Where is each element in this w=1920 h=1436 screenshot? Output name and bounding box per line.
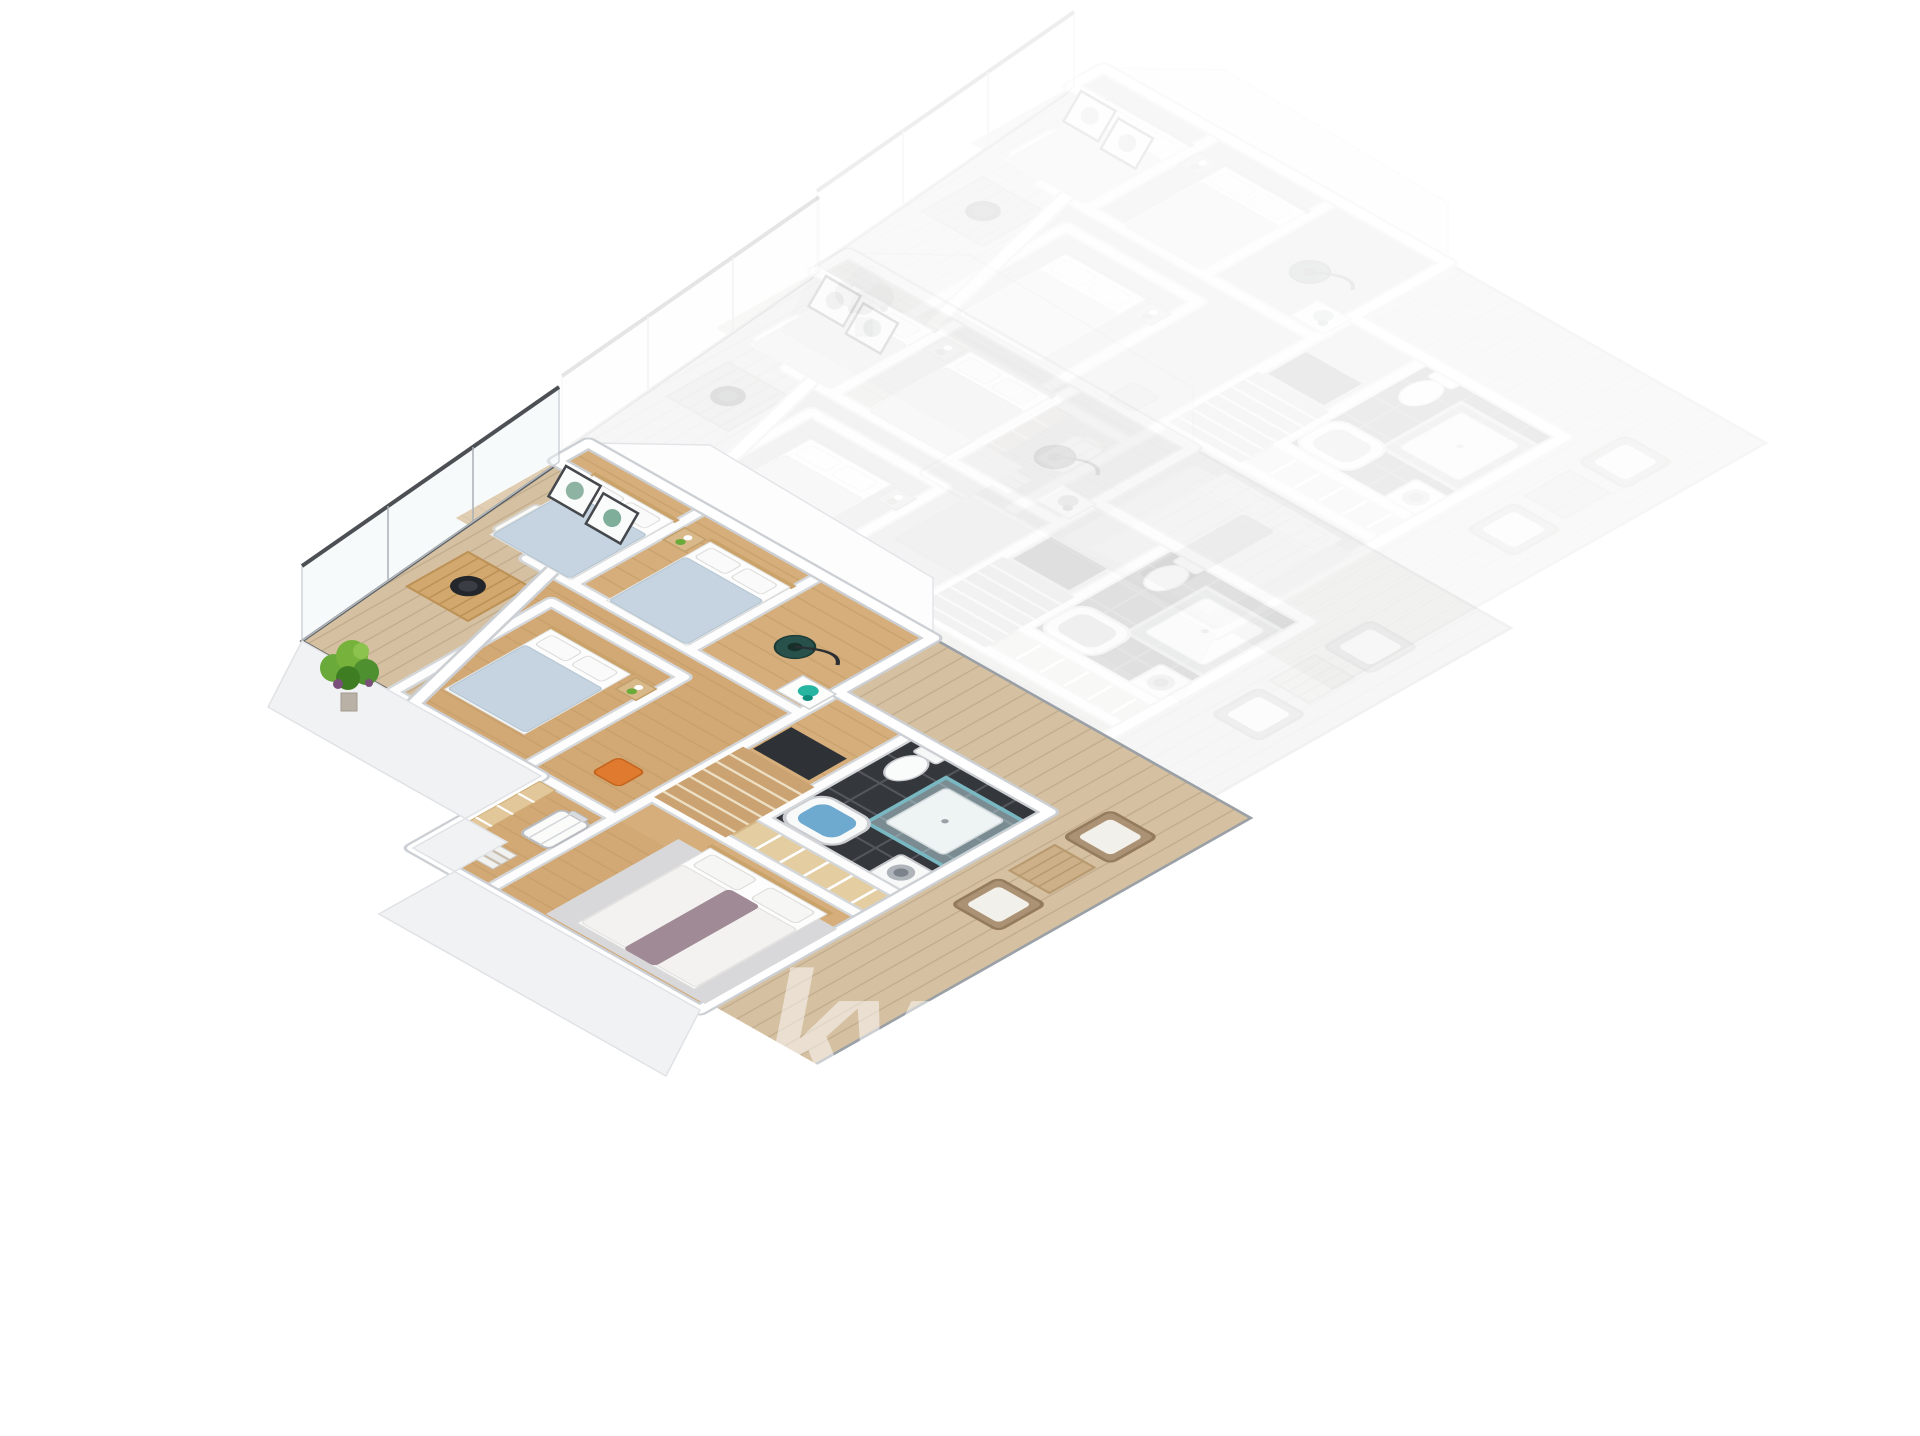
watermark-brand: KELLERWILLIAMS [790,1096,1229,1148]
watermark-region-line1: CZECH [963,1011,1111,1055]
floorplan-canvas: kw CZECH REPUBLIC KELLERWILLIAMS [0,0,1920,1436]
floorplan-render: kw CZECH REPUBLIC KELLERWILLIAMS [0,0,1920,1436]
watermark-region-line2: REPUBLIC [963,1053,1183,1097]
